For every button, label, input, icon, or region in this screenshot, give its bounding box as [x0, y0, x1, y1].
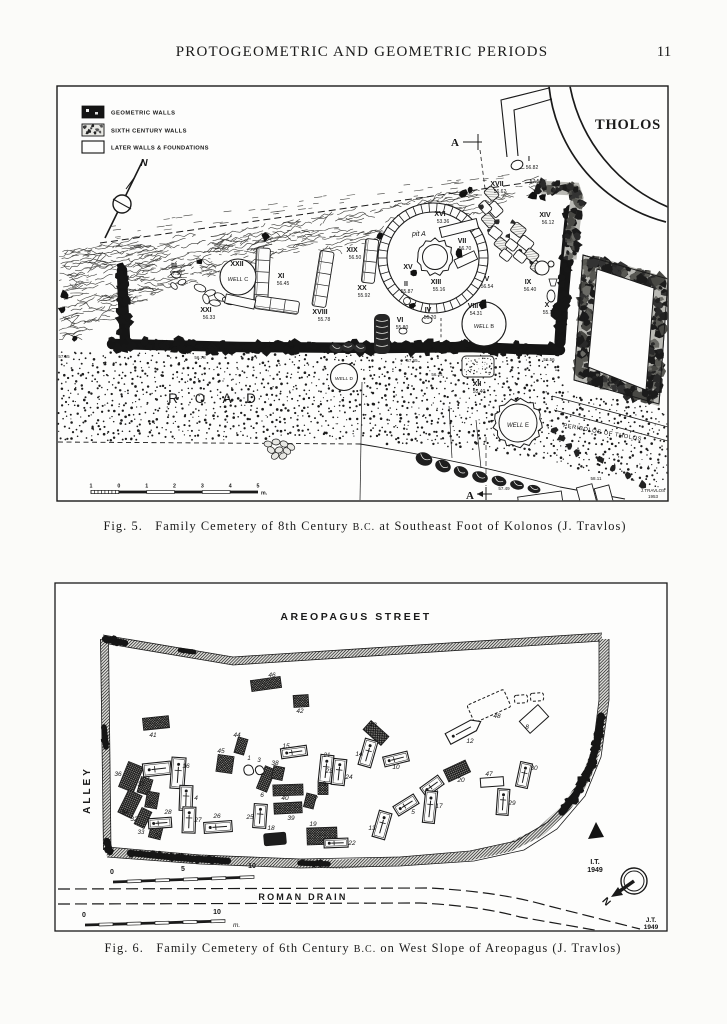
svg-text:IX: IX: [525, 279, 532, 286]
svg-text:57.10: 57.10: [170, 271, 183, 277]
svg-text:1: 1: [145, 484, 148, 490]
svg-text:ROMAN DRAIN: ROMAN DRAIN: [258, 892, 347, 902]
svg-text:WELL C: WELL C: [228, 277, 249, 283]
svg-text:55.80: 55.80: [396, 325, 409, 331]
svg-text:GEOMETRIC WALLS: GEOMETRIC WALLS: [111, 111, 176, 117]
svg-text:14: 14: [355, 751, 363, 758]
svg-text:II: II: [404, 281, 408, 288]
svg-text:42: 42: [296, 708, 304, 715]
svg-text:55.76: 55.76: [543, 310, 556, 316]
svg-text:53.36: 53.36: [437, 219, 450, 225]
svg-text:A: A: [451, 137, 459, 149]
svg-text:23: 23: [324, 768, 333, 775]
svg-text:m.: m.: [233, 922, 240, 929]
svg-text:XII: XII: [473, 381, 482, 388]
svg-text:56.20: 56.20: [424, 315, 437, 321]
svg-text:38: 38: [271, 760, 279, 767]
svg-text:54.31: 54.31: [470, 311, 483, 317]
svg-text:N: N: [140, 158, 148, 169]
svg-text:8: 8: [525, 724, 529, 731]
svg-text:56.33: 56.33: [203, 315, 216, 321]
svg-text:WELL E: WELL E: [507, 423, 529, 429]
svg-text:XVI: XVI: [434, 211, 445, 218]
svg-text:5: 5: [411, 809, 415, 816]
svg-text:A: A: [222, 391, 231, 406]
svg-text:WELL D: WELL D: [335, 376, 353, 382]
svg-text:III: III: [171, 263, 177, 270]
svg-text:10: 10: [213, 909, 221, 916]
svg-text:WELL B: WELL B: [474, 324, 495, 330]
svg-text:16: 16: [182, 763, 190, 770]
svg-text:55.87: 55.87: [401, 289, 414, 295]
svg-text:0: 0: [117, 484, 120, 490]
svg-text:29: 29: [507, 800, 516, 807]
svg-text:33: 33: [138, 830, 145, 836]
svg-text:O: O: [195, 391, 206, 406]
svg-text:XIII: XIII: [431, 279, 442, 286]
svg-text:AREOPAGUS STREET: AREOPAGUS STREET: [280, 611, 431, 623]
svg-text:57.49: 57.49: [498, 486, 510, 491]
svg-text:pit A: pit A: [411, 231, 426, 238]
svg-text:56.54: 56.54: [481, 284, 494, 290]
svg-text:X: X: [545, 302, 550, 309]
svg-text:40: 40: [281, 795, 289, 802]
svg-text:47: 47: [485, 771, 493, 778]
svg-text:VII: VII: [458, 238, 467, 245]
svg-text:I: I: [528, 156, 530, 163]
svg-text:2: 2: [173, 484, 176, 490]
svg-text:55.92: 55.92: [358, 293, 371, 299]
svg-text:ALLEY: ALLEY: [82, 766, 93, 814]
svg-text:m.: m.: [261, 491, 268, 497]
svg-text:45: 45: [217, 748, 225, 755]
svg-text:J.TRAVLOS: J.TRAVLOS: [641, 488, 665, 493]
svg-text:56.50: 56.50: [349, 255, 362, 261]
svg-text:0: 0: [110, 869, 114, 876]
svg-text:0: 0: [82, 912, 86, 919]
svg-text:15: 15: [282, 743, 290, 750]
svg-text:XVIII: XVIII: [312, 309, 327, 316]
svg-text:27: 27: [193, 817, 202, 824]
svg-text:46: 46: [268, 672, 276, 679]
svg-text:SIXTH CENTURY WALLS: SIXTH CENTURY WALLS: [111, 129, 187, 135]
svg-text:37: 37: [137, 781, 145, 788]
svg-text:I.T.: I.T.: [590, 859, 599, 866]
svg-text:39: 39: [287, 815, 295, 822]
svg-text:XX: XX: [357, 285, 367, 292]
svg-text:XXII: XXII: [230, 261, 243, 268]
svg-text:10: 10: [248, 863, 256, 870]
svg-text:11: 11: [657, 44, 671, 60]
svg-text:55.16: 55.16: [433, 287, 446, 293]
svg-text:56.62: 56.62: [494, 189, 507, 195]
svg-text:31: 31: [154, 833, 162, 840]
svg-text:36: 36: [114, 771, 122, 778]
svg-text:XXI: XXI: [200, 307, 211, 314]
svg-text:57.55: 57.55: [58, 354, 70, 359]
svg-text:19: 19: [309, 821, 317, 828]
svg-text:3: 3: [201, 484, 204, 490]
svg-text:A: A: [466, 490, 474, 502]
svg-text:30: 30: [530, 765, 538, 772]
svg-text:28: 28: [163, 809, 172, 816]
svg-text:XV: XV: [403, 264, 413, 271]
svg-text:56.82: 56.82: [526, 165, 539, 171]
svg-text:56.12: 56.12: [542, 220, 555, 226]
svg-text:56.78: 56.78: [194, 355, 206, 360]
svg-text:4: 4: [194, 795, 198, 802]
svg-text:32: 32: [130, 816, 138, 823]
svg-text:56.56: 56.56: [543, 357, 555, 362]
svg-text:5: 5: [181, 866, 185, 873]
svg-text:56.45: 56.45: [277, 281, 290, 287]
svg-text:VIII: VIII: [468, 303, 479, 310]
svg-text:Fig. 5. Family Cemetery of 8: Fig. 5. Family Cemetery of 8th Century B…: [103, 519, 626, 533]
svg-text:XIX: XIX: [346, 247, 358, 254]
svg-text:55.78: 55.78: [318, 317, 331, 323]
svg-text:35: 35: [146, 800, 154, 807]
svg-text:58.11: 58.11: [591, 476, 602, 481]
svg-text:XI: XI: [278, 273, 285, 280]
svg-text:XIV: XIV: [539, 212, 551, 219]
svg-text:26: 26: [212, 813, 221, 820]
svg-text:J.T.: J.T.: [646, 917, 657, 924]
svg-text:17: 17: [435, 803, 443, 810]
svg-text:R: R: [168, 391, 178, 406]
svg-text:7: 7: [314, 796, 318, 803]
svg-text:34: 34: [121, 809, 129, 816]
svg-text:24: 24: [344, 774, 353, 781]
svg-text:56.70: 56.70: [459, 246, 472, 252]
svg-text:57.65: 57.65: [406, 358, 418, 363]
svg-text:10: 10: [392, 764, 400, 771]
svg-text:1: 1: [90, 484, 93, 490]
svg-text:LATER WALLS & FOUNDATIONS: LATER WALLS & FOUNDATIONS: [111, 146, 209, 152]
svg-text:IV: IV: [425, 307, 432, 314]
svg-text:1: 1: [247, 756, 250, 762]
svg-text:4: 4: [229, 484, 232, 490]
svg-text:22: 22: [347, 840, 356, 847]
svg-text:43: 43: [369, 722, 377, 729]
svg-text:41: 41: [149, 732, 157, 739]
svg-text:55.40: 55.40: [473, 389, 486, 395]
svg-text:18: 18: [267, 825, 275, 832]
svg-text:V: V: [485, 276, 490, 283]
svg-text:1953: 1953: [648, 494, 659, 499]
svg-text:57.57: 57.57: [530, 179, 543, 185]
svg-text:56.24: 56.24: [431, 372, 443, 377]
svg-text:48: 48: [493, 713, 501, 720]
svg-text:VI: VI: [397, 317, 404, 324]
svg-text:PROTOGEOMETRIC AND GEOMETRIC P: PROTOGEOMETRIC AND GEOMETRIC PERIODS: [176, 44, 549, 60]
svg-text:D: D: [246, 391, 256, 406]
svg-text:20: 20: [456, 777, 465, 784]
svg-text:6: 6: [260, 792, 264, 799]
svg-text:13: 13: [368, 825, 376, 832]
svg-text:1949: 1949: [587, 867, 603, 874]
svg-text:XVII: XVII: [490, 181, 503, 188]
svg-text:1949: 1949: [644, 924, 659, 931]
svg-text:5: 5: [257, 484, 260, 490]
svg-text:Fig. 6. Family Cemetery of 6: Fig. 6. Family Cemetery of 6th Century B…: [105, 941, 622, 955]
svg-text:THOLOS: THOLOS: [595, 117, 661, 133]
svg-text:12: 12: [466, 738, 474, 745]
svg-text:9: 9: [322, 781, 326, 788]
svg-text:56.40: 56.40: [524, 287, 537, 293]
svg-text:25: 25: [245, 814, 254, 821]
svg-text:21: 21: [323, 753, 331, 759]
svg-text:44: 44: [233, 732, 241, 739]
